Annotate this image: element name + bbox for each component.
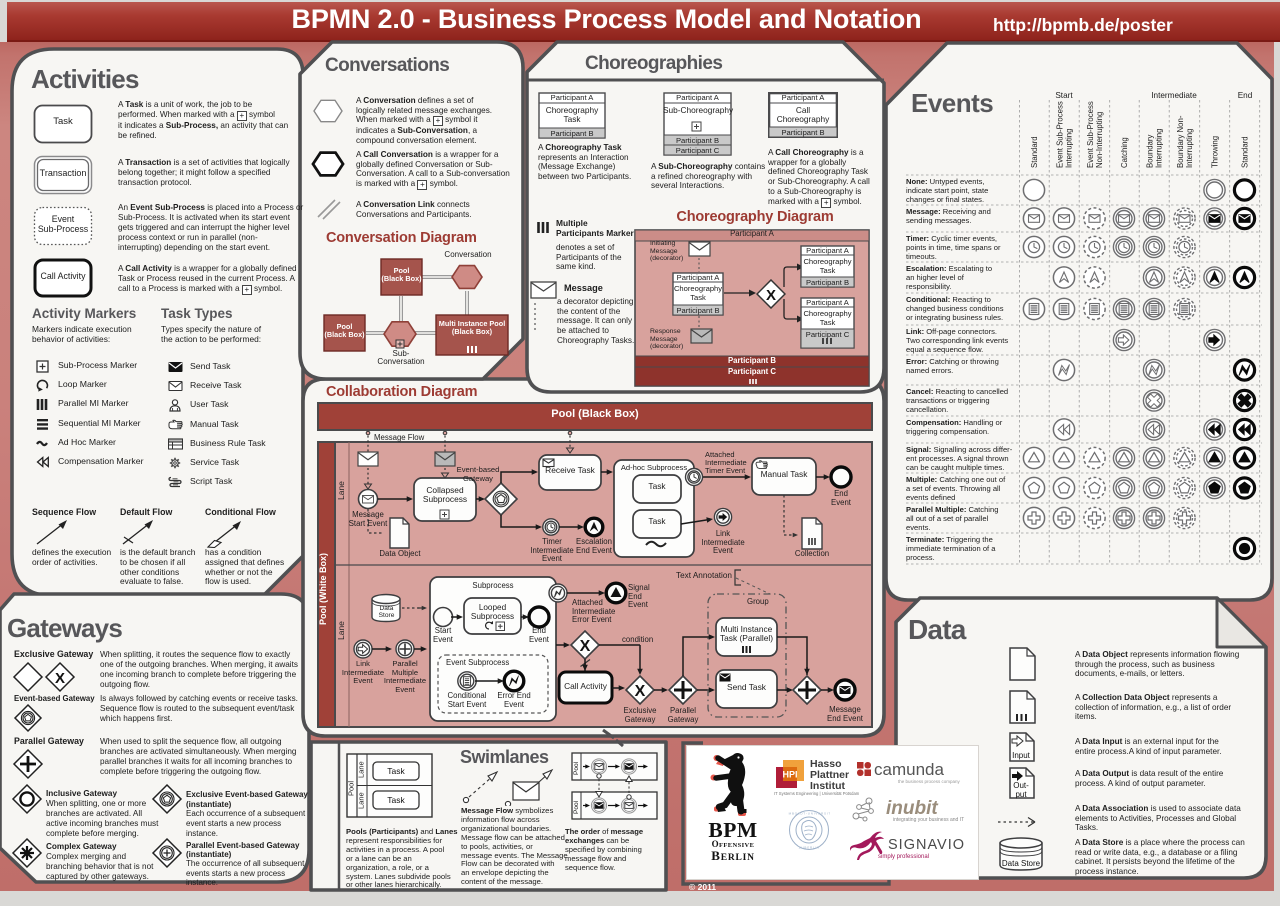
svg-text:Z U B E R L I N: Z U B E R L I N [799,846,820,850]
svg-text:H U M B O L D T - U N I V E R: H U M B O L D T - U N I V E R S I T A T [788,812,830,816]
svg-text:Out-: Out- [1013,781,1029,790]
svg-text:inubit: inubit [886,798,938,819]
svg-text:camunda: camunda [874,760,944,779]
svg-text:HPI: HPI [782,770,797,780]
svg-text:Input: Input [1012,751,1031,760]
svg-text:Data Store: Data Store [1002,859,1041,868]
svg-text:SIGNAVIO: SIGNAVIO [888,837,965,853]
svg-text:put: put [1015,790,1027,799]
